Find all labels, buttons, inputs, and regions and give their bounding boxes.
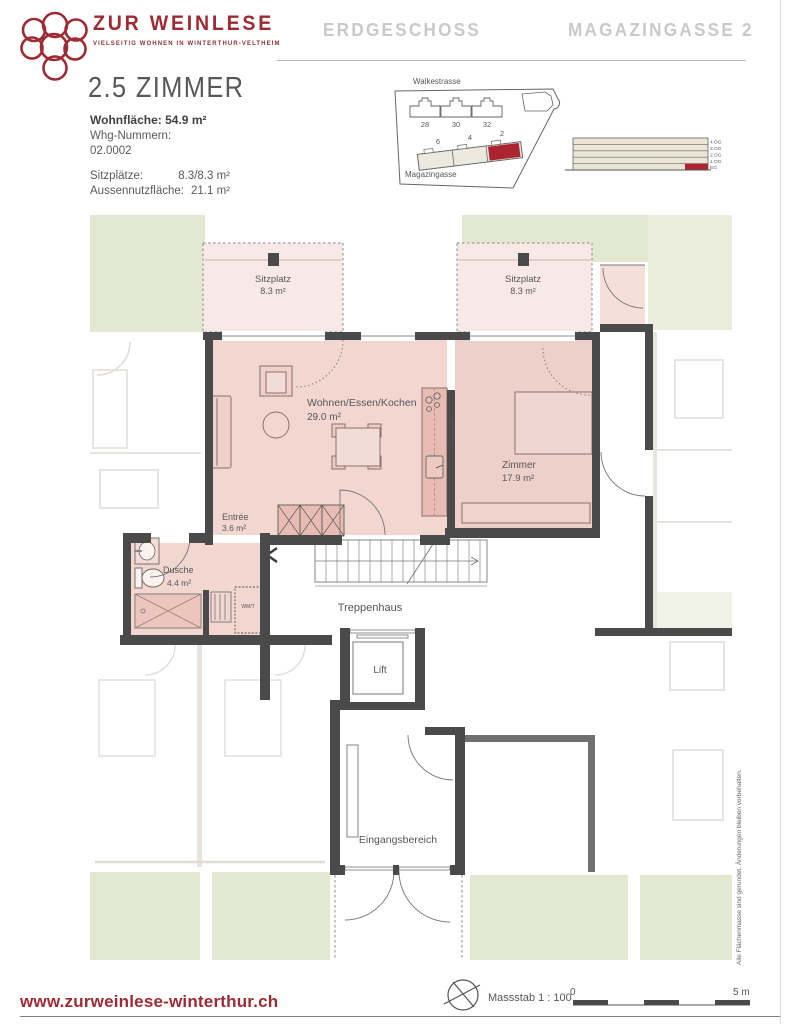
garden-right-mid (653, 592, 732, 628)
house-number-6: 6 (436, 137, 440, 146)
walkestrasse-houses (410, 98, 502, 117)
house-number-28: 28 (421, 120, 429, 129)
label-dusche-area: 4.4 m² (167, 578, 191, 588)
house-number-32: 32 (483, 120, 491, 129)
compass-icon (444, 980, 480, 1010)
label-eingangsbereich: Eingangsbereich (359, 834, 437, 846)
detail-label: Sitzplätze: (90, 170, 143, 182)
header-rule (277, 60, 746, 61)
label-sitzplatz-left-area: 8.3 m² (260, 286, 286, 296)
label-dusche: Dusche (163, 565, 194, 575)
label-wohnen-area: 29.0 m² (307, 412, 342, 423)
apartment-title: 2.5 ZIMMER (88, 72, 244, 105)
scale-bar: 0 5 m (570, 987, 750, 1005)
floor-label-4og: 4.OG (710, 140, 722, 146)
sink-icon (426, 456, 443, 478)
garden-bottom-right-a (470, 875, 628, 960)
elevation-diagram: 4.OG 3.OG 2.OG 1.OG EG (565, 130, 745, 176)
detail-value: 8.3/8.3 m² (178, 170, 230, 182)
flyer-page: ZUR WEINLESE VIELSEITIG WOHNEN IN WINTER… (0, 0, 789, 1024)
street-top-label: Walkestrasse (413, 77, 461, 86)
sideboard (347, 745, 358, 837)
detail-row-sitzplaetze: Sitzplätze: 8.3/8.3 m² (90, 170, 230, 182)
floor-label-1og: 1.OG (710, 159, 722, 165)
house-number-30: 30 (452, 120, 460, 129)
floor-label-eg: EG (710, 165, 717, 171)
kitchen-counter (422, 388, 447, 516)
garden-bottom-left-b (212, 872, 330, 960)
detail-value: 21.1 m² (191, 185, 230, 197)
garden-far-right (648, 215, 732, 330)
footer-rule (20, 1016, 780, 1017)
washer-box (235, 587, 261, 633)
grape-logo-icon (10, 8, 90, 84)
brand-subtitle: VIELSEITIG WOHNEN IN WINTERTHUR-VELTHEIM (93, 41, 281, 47)
entree-wardrobe (278, 505, 344, 536)
living-area-label: Wohnfläche: (90, 113, 162, 127)
detail-row-aussennutzflaeche: Aussennutzfläche: 21.1 m² (90, 185, 230, 197)
detail-label: Aussennutzfläche: (90, 185, 184, 197)
stairs (315, 538, 487, 586)
label-entree: Entrée (222, 512, 249, 522)
vestibule-top-right (600, 265, 645, 324)
label-zimmer-area: 17.9 m² (502, 473, 534, 484)
page-right-border (780, 0, 781, 1024)
scale-label: Massstab 1 : 100 (488, 992, 572, 1004)
garden-bottom-left-a (90, 872, 200, 960)
floor-plan: Sitzplatz 8.3 m² Sitzplatz 8.3 m² Wohnen… (85, 210, 745, 970)
label-sitzplatz-right-area: 8.3 m² (510, 286, 536, 296)
label-lift: Lift (373, 665, 387, 676)
label-entree-area: 3.6 m² (222, 523, 246, 533)
living-area-value: 54.9 m² (165, 113, 206, 127)
address-title: MAGAZINGASSE 2 (568, 20, 754, 41)
floor-label-2og: 2.OG (710, 152, 722, 158)
neighbour-right (653, 332, 732, 820)
side-note: Alle Flächenmasse sind gerundet. Änderun… (736, 700, 743, 965)
entrance-canopy-dashed (335, 870, 462, 960)
house-number-2: 2 (500, 129, 504, 138)
brand-title: ZUR WEINLESE (93, 12, 274, 36)
highlighted-floor-marker (685, 164, 708, 170)
garden-top-left (90, 215, 205, 332)
floor-label-3og: 3.OG (710, 146, 722, 152)
label-zimmer: Zimmer (502, 460, 537, 471)
website-link: www.zurweinlese-winterthur.ch (20, 992, 278, 1012)
unit-number: 02.0002 (90, 145, 132, 157)
label-wohnen: Wohnen/Essen/Kochen (307, 397, 417, 409)
scale-zero-label: 0 (570, 987, 576, 998)
street-bottom-label: Magazingasse (405, 170, 457, 179)
living-area-line: Wohnfläche: 54.9 m² (90, 113, 206, 127)
neighbour-left (90, 342, 201, 508)
label-treppenhaus: Treppenhaus (338, 602, 403, 614)
label-sitzplatz-right: Sitzplatz (505, 274, 541, 285)
lift (350, 630, 415, 694)
scale-max-label: 5 m (733, 987, 750, 998)
label-sliding-door: Schiebetür (451, 418, 457, 447)
label-washer: WM/T (241, 604, 254, 610)
house-number-4: 4 (468, 133, 472, 142)
floor-title: ERDGESCHOSS (323, 20, 481, 41)
site-building-corner (522, 92, 553, 111)
magazingasse-row (417, 138, 523, 171)
site-plan: Walkestrasse 28 30 32 6 4 2 Magazingasse (385, 72, 570, 197)
garden-bottom-right-b (640, 875, 732, 960)
neighbour-bottom-left (95, 645, 325, 867)
label-sitzplatz-left: Sitzplatz (255, 274, 291, 285)
wc-icon (135, 568, 142, 588)
footer-scale: Massstab 1 : 100 0 5 m (430, 975, 789, 1020)
unit-numbers-label: Whg-Nummern: (90, 130, 171, 142)
